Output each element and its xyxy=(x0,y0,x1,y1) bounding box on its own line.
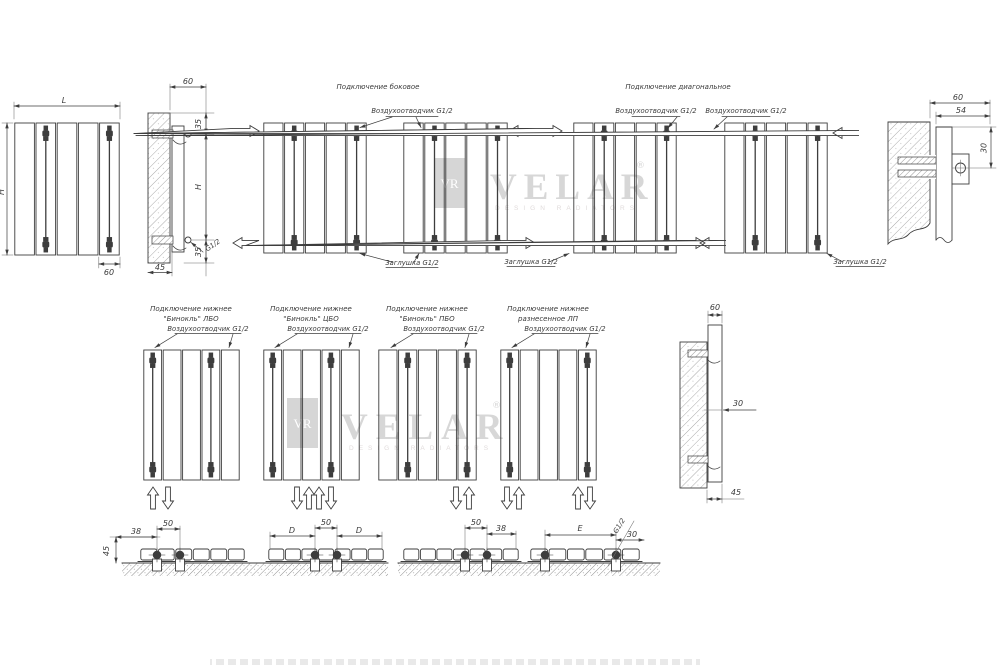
dim-section-pitch: 60 xyxy=(104,268,114,277)
radiator-front-view xyxy=(2,102,120,268)
scheme-title: Подключение нижнее xyxy=(270,305,352,313)
air-vent-label: Воздухоотводчик G1/2 xyxy=(705,107,786,115)
air-vent-label: Воздухоотводчик G1/2 xyxy=(167,325,248,333)
plug-label: Заглушка G1/2 xyxy=(833,258,886,266)
scheme-subtitle: разнесенное ЛП xyxy=(517,315,579,323)
dim-edge-offset: 38 xyxy=(496,524,506,533)
dim-top-offset: 35 xyxy=(194,119,203,129)
dim-wall-offset: 45 xyxy=(731,488,741,497)
dim-offset: 30 xyxy=(627,530,637,539)
scheme-title: Подключение нижнее xyxy=(507,305,589,313)
radiator-body xyxy=(15,123,119,255)
dim-length: L xyxy=(62,96,66,105)
dim-height: H xyxy=(194,184,203,190)
watermark-tagline: DESIGN RADIATORS xyxy=(495,205,639,212)
scheme-title: Подключение нижнее xyxy=(386,305,468,313)
dim-axis-offset: 30 xyxy=(733,399,743,408)
scheme-subtitle: "Бинокль" ПБО xyxy=(399,315,455,323)
dim-pitch: 50 xyxy=(321,518,331,527)
floor-detail-3-dims xyxy=(465,525,516,551)
dim-right-span: D xyxy=(356,526,362,535)
dim-pitch: 50 xyxy=(471,518,481,527)
dim-span: E xyxy=(577,524,583,533)
air-vent-label: Воздухоотводчик G1/2 xyxy=(371,107,452,115)
air-vent-label: Воздухоотводчик G1/2 xyxy=(403,325,484,333)
scheme-title-side: Подключение боковое xyxy=(337,83,420,91)
watermark-brand: VELAR xyxy=(341,407,511,448)
dim-depth: 60 xyxy=(953,93,963,102)
watermark-brand: VELAR xyxy=(490,167,655,208)
scheme-labels-4 xyxy=(512,334,598,348)
dim-depth: 60 xyxy=(183,77,193,86)
radiator-diagonal-right xyxy=(725,123,827,253)
watermark-vr-monogram: VR xyxy=(440,176,458,191)
dim-pitch: 50 xyxy=(163,519,173,528)
flow-arrows-bottom-schemes xyxy=(148,487,596,509)
watermark-tagline: DESIGN RADIATORS xyxy=(349,445,493,452)
wall-cross-section-right xyxy=(888,100,996,244)
radiator-side-connection-left xyxy=(264,123,366,253)
radiator-bottom-left-connection xyxy=(144,350,239,480)
dim-left-span: D xyxy=(289,526,295,535)
air-vent-label: Воздухоотводчик G1/2 xyxy=(615,107,696,115)
dim-axis-offset: 30 xyxy=(980,143,989,153)
dim-width: 54 xyxy=(956,106,966,115)
dim-depth: 60 xyxy=(710,303,720,312)
air-vent-label: Воздухоотводчик G1/2 xyxy=(524,325,605,333)
radiator-bottom-split-connection xyxy=(501,350,596,480)
thread-label: G1/2 xyxy=(612,517,627,535)
scheme-title: Подключение нижнее xyxy=(150,305,232,313)
plug-label: Заглушка G1/2 xyxy=(385,259,438,267)
floor-strips xyxy=(122,563,660,576)
dim-bottom-offset: 35 xyxy=(194,247,203,257)
scheme-subtitle: "Бинокль" ЦБО xyxy=(283,315,339,323)
bottom-artifact-strip xyxy=(210,659,700,665)
floor-detail-2-dims xyxy=(270,525,382,551)
air-vent-label: Воздухоотводчик G1/2 xyxy=(287,325,368,333)
wall-side-view-middle xyxy=(680,311,756,503)
scheme-labels-1 xyxy=(155,334,241,348)
flow-out-arrow xyxy=(233,238,259,249)
drawing-svg: VR VELAR ® DESIGN RADIATORS VR VELAR ® D… xyxy=(0,0,1000,666)
scheme-labels-2 xyxy=(275,334,361,348)
registered-mark-icon: ® xyxy=(492,401,501,411)
scheme-labels-3 xyxy=(391,334,477,348)
scheme-subtitle: "Бинокль" ЛБО xyxy=(163,315,219,323)
scheme-title-diagonal: Подключение диагональное xyxy=(625,83,730,91)
dim-height: H xyxy=(0,189,6,195)
registered-mark-icon: ® xyxy=(636,161,645,171)
dim-height: 45 xyxy=(102,546,111,556)
dim-edge-offset: 38 xyxy=(131,527,141,536)
dim-wall-offset: 45 xyxy=(155,263,165,272)
radiator-installation-drawing: VR VELAR ® DESIGN RADIATORS VR VELAR ® D… xyxy=(0,0,1000,666)
